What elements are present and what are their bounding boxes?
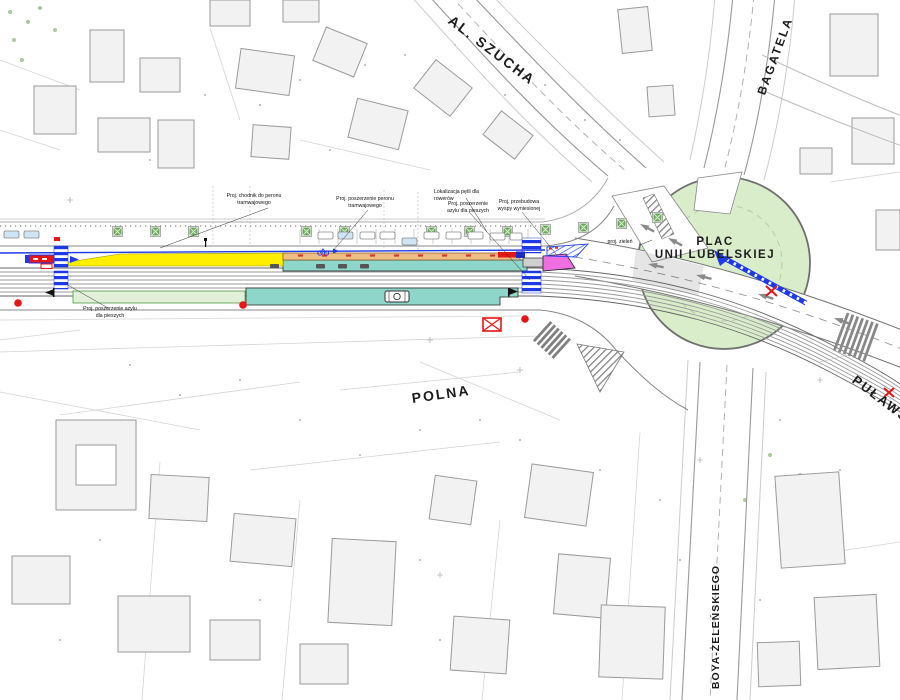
annotation-proj-zielen: proj. zieleń: [601, 239, 639, 246]
hatched-island: [577, 344, 624, 392]
red-envelope-marker: [483, 318, 501, 331]
street-label-plac-unii: PLAC UNII LUBELSKIEJ: [645, 236, 785, 262]
refuge-red-right: [498, 252, 525, 259]
buildings: [12, 0, 900, 687]
base-map: [0, 0, 900, 700]
annotation-chodnik-do-peronu: Proj. chodnik do peronu tramwajowego: [225, 193, 283, 206]
platform-widening-yellow: [68, 253, 283, 266]
refuge-red-left: [25, 255, 54, 269]
platform-shelter-symbol: [385, 291, 409, 302]
annotation-azyl-pieszych-2: Proj. poszerzenie azylu dla pieszych: [82, 306, 138, 319]
annotation-azyl-pieszych-1: Proj. poszerzenie azylu dla pieszych: [446, 201, 490, 214]
parked-cars: [4, 231, 522, 245]
design-overlays: [25, 238, 588, 305]
plac-line2: UNII LUBELSKIEJ: [645, 249, 785, 262]
plac-line1: PLAC: [645, 236, 785, 249]
green-strip-proposed: [73, 291, 245, 303]
annotation-wyspa-wyniesiona: Proj. przebudowa wyspy wyniesionej: [496, 199, 542, 212]
street-label-boya-zelenskiego: BOYA-ŻELEŃSKIEGO: [710, 552, 722, 700]
teal-pavement-lower: [246, 288, 518, 305]
annotation-poszerzenie-peronu: Proj. poszerzenie peronu tramwajowego: [336, 196, 394, 209]
shelter-structure: [523, 258, 543, 267]
site-plan: AL. SZUCHA BAGATELA PLAC UNII LUBELSKIEJ…: [0, 0, 900, 700]
